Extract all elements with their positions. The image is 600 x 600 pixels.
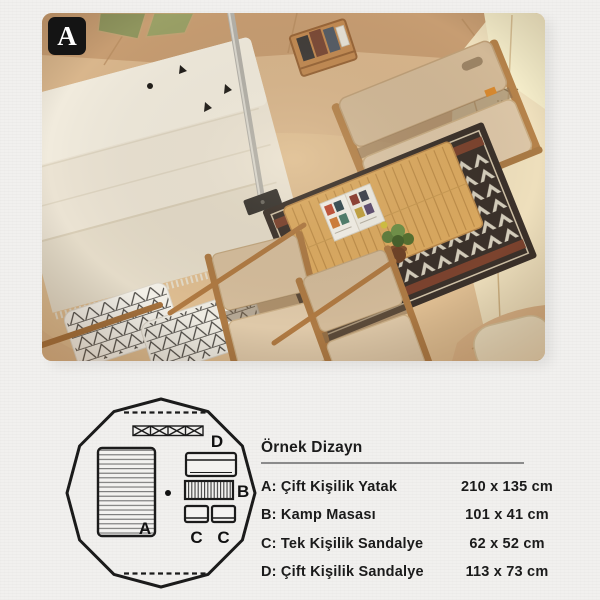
legend-row: B: Kamp Masası 101 x 41 cm: [261, 507, 563, 524]
legend-panel: A: Çift Kişilik Yatak 210 x 135 cm B: Ka…: [261, 479, 563, 592]
chair-rect-right: C: [212, 506, 235, 547]
table-rect: B: [185, 481, 249, 501]
legend-item-label: B: Kamp Masası: [261, 507, 451, 523]
bench-rect: D: [186, 432, 236, 476]
legend-item-size: 210 x 135 cm: [451, 479, 563, 495]
legend-item-size: 113 x 73 cm: [451, 564, 563, 580]
legend-item-label: D: Çift Kişilik Sandalye: [261, 564, 451, 580]
bed-label: A: [139, 519, 151, 538]
photo-badge: A: [48, 17, 86, 55]
legend-item-size: 101 x 41 cm: [451, 507, 563, 523]
legend-item-label: A: Çift Kişilik Yatak: [261, 479, 451, 495]
chair-left-label: C: [190, 528, 202, 547]
photo-badge-label: A: [57, 23, 77, 50]
chair-right-label: C: [217, 528, 229, 547]
legend-row: D: Çift Kişilik Sandalye 113 x 73 cm: [261, 564, 563, 581]
product-infographic: A A D: [0, 0, 600, 600]
legend-row: A: Çift Kişilik Yatak 210 x 135 cm: [261, 479, 563, 496]
bed-rect: A: [98, 448, 155, 538]
legend-row: C: Tek Kişilik Sandalye 62 x 52 cm: [261, 536, 563, 553]
storage-rack: [133, 426, 203, 436]
table-label: B: [237, 482, 249, 501]
legend-divider: [261, 462, 524, 464]
legend-item-size: 62 x 52 cm: [451, 536, 563, 552]
center-pole-dot: [165, 490, 171, 496]
photo-vignette: [42, 13, 545, 361]
tent-interior-photo: A: [42, 13, 545, 361]
bench-label: D: [211, 432, 223, 451]
tent-photo-illustration: [42, 13, 545, 361]
floorplan-diagram: A D B C C: [50, 393, 280, 598]
legend-title: Örnek Dizayn: [261, 439, 362, 457]
legend-item-label: C: Tek Kişilik Sandalye: [261, 536, 451, 552]
chair-rect-left: C: [185, 506, 208, 547]
